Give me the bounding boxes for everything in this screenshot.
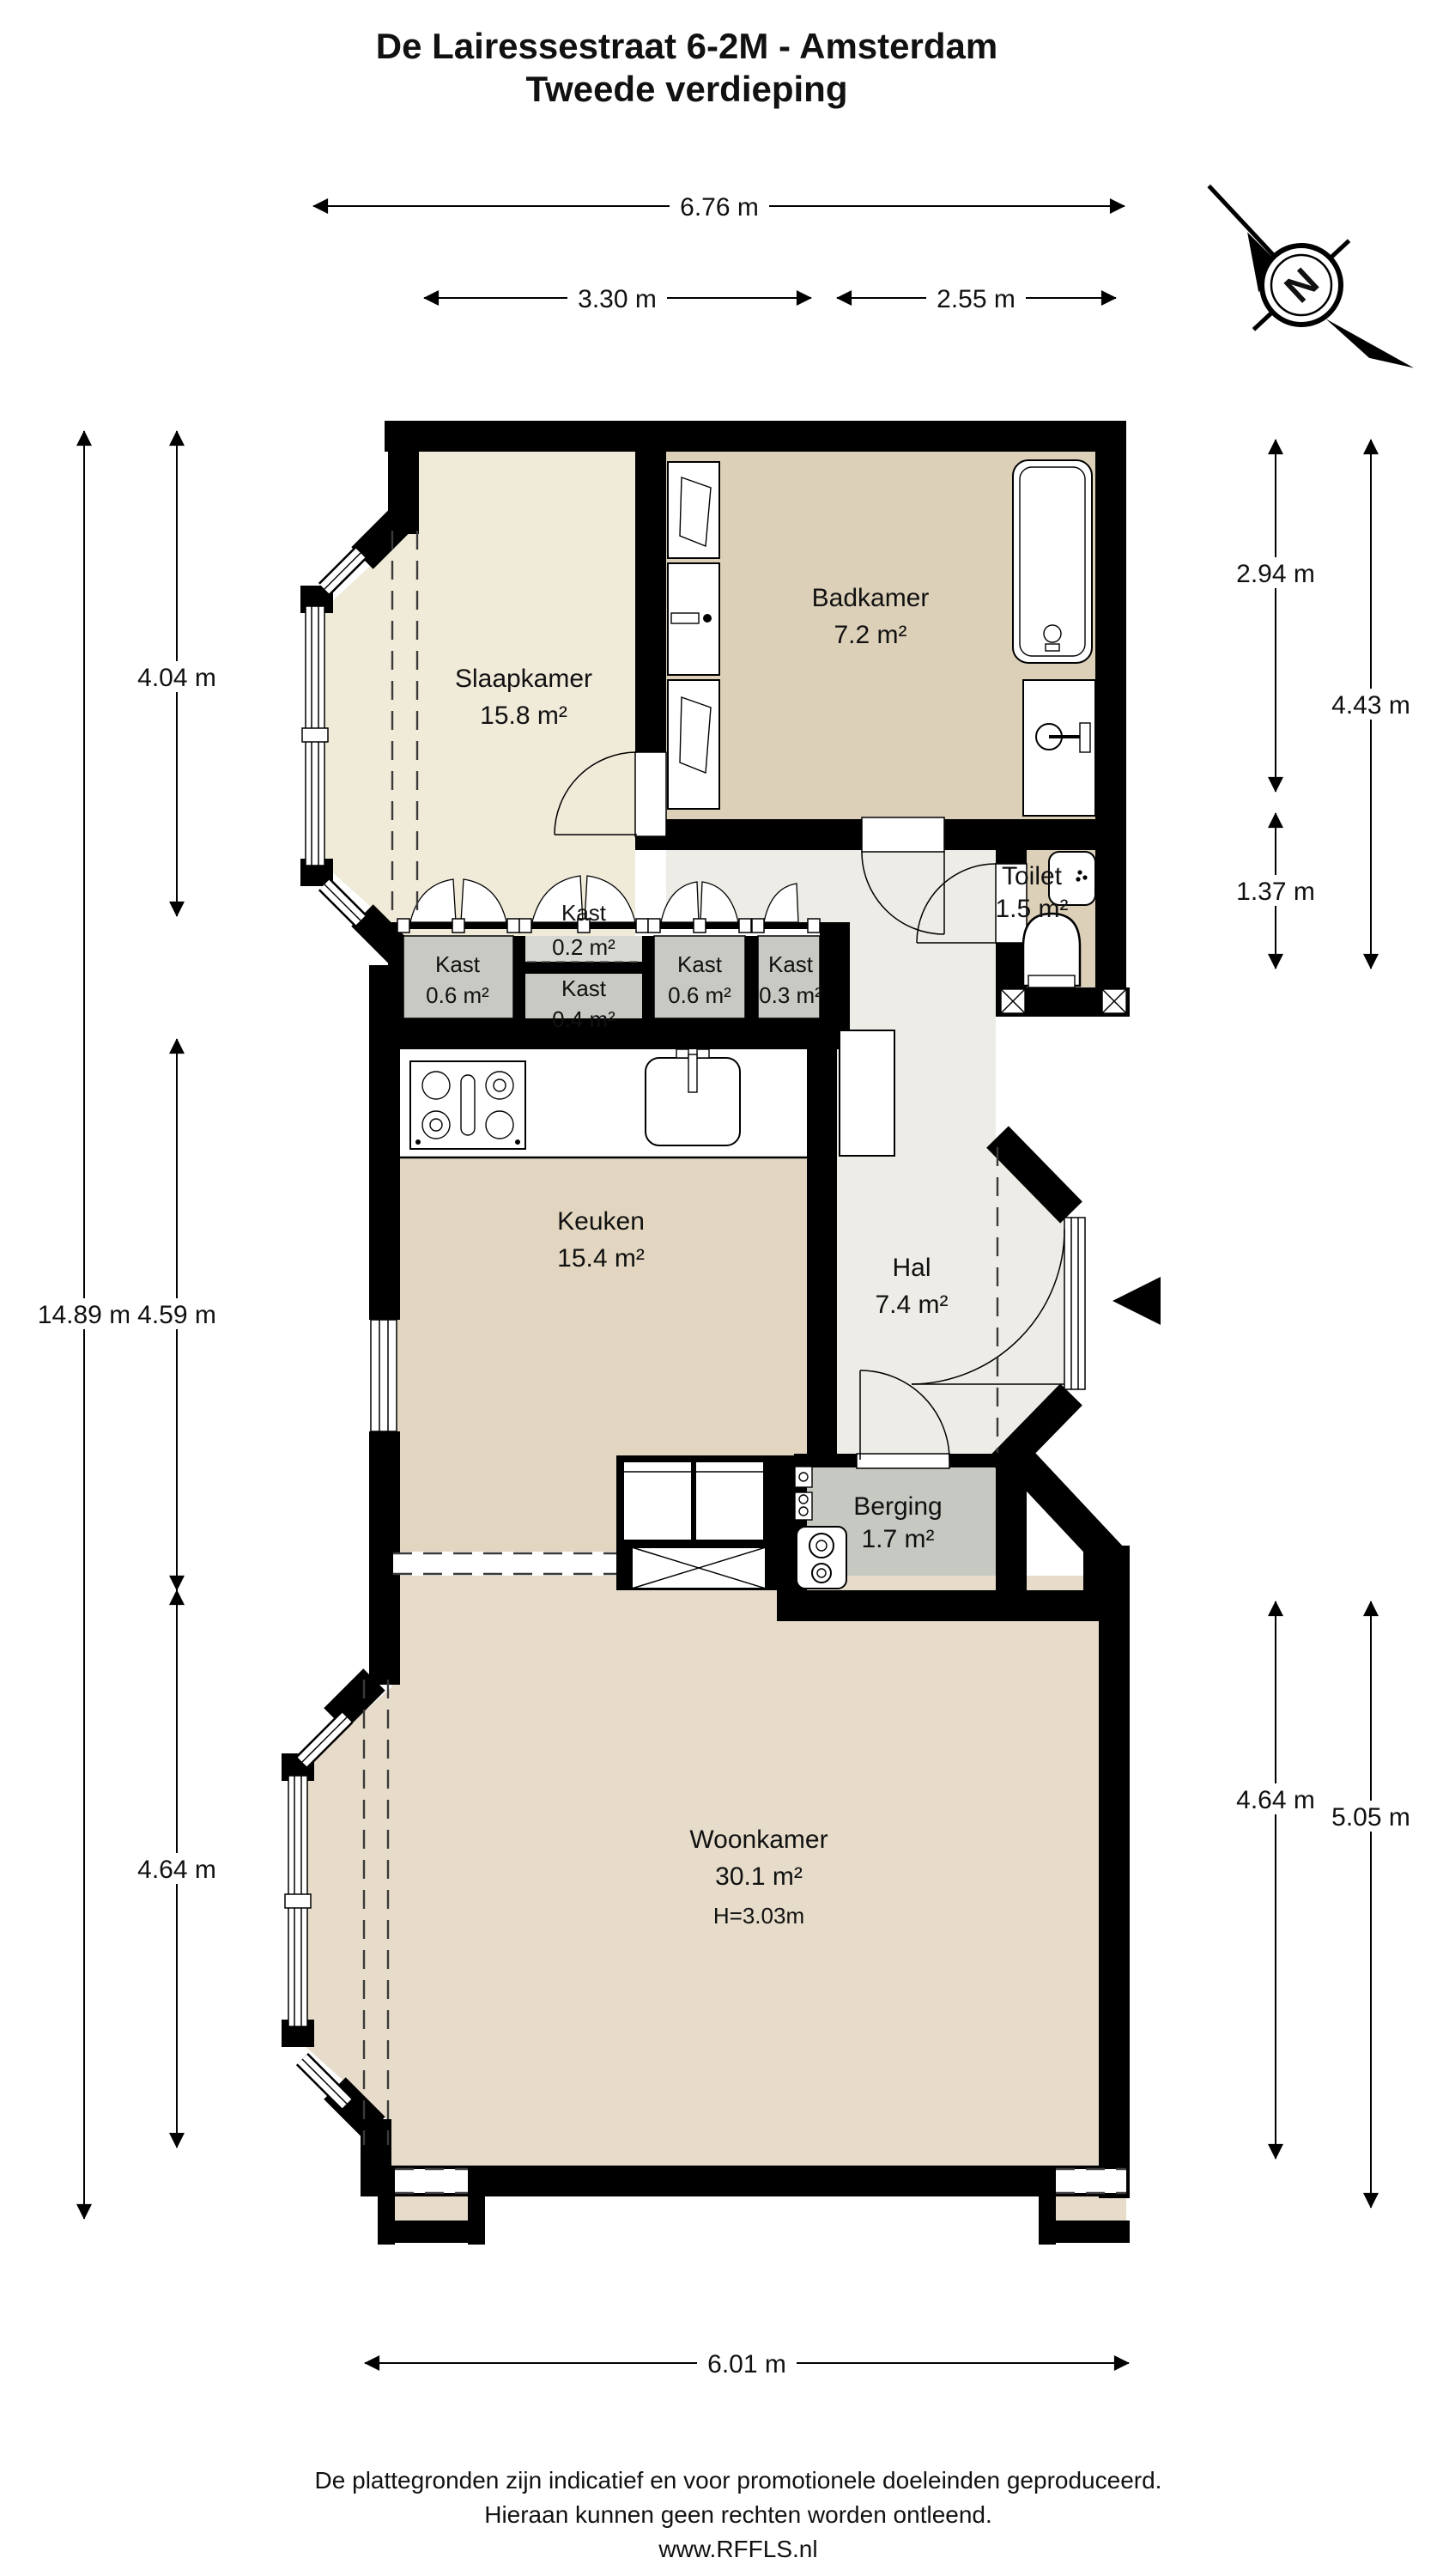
badkamer-area: 7.2 m² xyxy=(834,621,906,649)
socket-hole xyxy=(799,1495,808,1504)
footer-line1: De plattegronden zijn indicatief en voor… xyxy=(315,2467,1162,2494)
dim-right-mid-inner: 1.37 m xyxy=(1236,878,1315,906)
dim-top-left: 3.30 m xyxy=(578,285,657,313)
kast4-area: 0.6 m² xyxy=(668,982,731,1008)
dim-top-right: 2.55 m xyxy=(937,285,1016,313)
title-line1: De Lairessestraat 6-2M - Amsterdam xyxy=(376,26,997,66)
kast-post xyxy=(507,919,519,933)
kast-divider-1 xyxy=(513,936,525,1018)
passage-opening xyxy=(393,1554,616,1573)
wall-keuken-left-upper xyxy=(369,965,400,1320)
kast-divider-2 xyxy=(641,936,654,1018)
kast1-label: Kast xyxy=(435,951,481,977)
wall-right-outer xyxy=(1095,421,1126,1017)
wall-woon-bottom xyxy=(361,2166,1130,2196)
basin-dot xyxy=(1082,875,1087,879)
wall-sockets xyxy=(795,1467,812,1520)
wall-top xyxy=(385,421,1126,452)
dim-left-total: 14.89 m xyxy=(38,1301,130,1329)
mirror-icon xyxy=(680,697,711,773)
dim-left-top: 4.04 m xyxy=(137,664,216,692)
faucet-spout xyxy=(688,1054,697,1092)
woonkamer-height: H=3.03m xyxy=(713,1903,804,1929)
bathtub-drain xyxy=(1044,625,1061,642)
boiler-dial-inner xyxy=(816,1540,827,1551)
faucet-knob xyxy=(676,1049,688,1058)
balcony-sill-right xyxy=(1056,2196,1126,2221)
bathroom-sinks xyxy=(668,462,719,809)
kast-post xyxy=(694,919,706,933)
dim-bottom-total: 6.01 m xyxy=(707,2350,786,2379)
kast4-label: Kast xyxy=(677,951,723,977)
title-line2: Tweede verdieping xyxy=(526,69,848,109)
kast-post xyxy=(739,919,751,933)
kast2-area: 0.2 m² xyxy=(552,934,615,960)
page-title: De Lairessestraat 6-2M - Amsterdam Tweed… xyxy=(376,26,997,109)
balcony-opening-right xyxy=(1056,2169,1126,2193)
dim-top-total: 6.76 m xyxy=(680,193,759,222)
kast3-area: 0.4 m² xyxy=(552,1006,615,1032)
shower-valve xyxy=(1080,723,1090,752)
kast-post xyxy=(636,919,648,933)
recess-bottom-left xyxy=(378,2221,485,2243)
bathtub xyxy=(1013,460,1092,663)
woonkamer-area: 30.1 m² xyxy=(715,1862,803,1891)
wall-keuken-hal xyxy=(807,1018,837,1460)
dim-right-bottom-outer: 5.05 m xyxy=(1331,1803,1410,1832)
knob-dot xyxy=(415,1139,421,1145)
hal-area: 7.4 m² xyxy=(875,1291,948,1319)
cooktop xyxy=(410,1061,525,1149)
kast5-label: Kast xyxy=(768,951,814,977)
hal-label: Hal xyxy=(892,1254,931,1282)
wall-woon-right xyxy=(1099,1621,1130,2198)
wall-kast-right xyxy=(820,926,850,1018)
compass-tick xyxy=(1253,313,1270,330)
boiler xyxy=(797,1527,846,1589)
kast-post xyxy=(452,919,464,933)
sink-faucet xyxy=(671,613,699,623)
wall-woon-top xyxy=(777,1590,1130,1621)
entry-door-frame xyxy=(1064,1218,1085,1389)
cooktop-center xyxy=(461,1075,475,1135)
window-band xyxy=(371,1320,397,1431)
slaapkamer-label: Slaapkamer xyxy=(455,665,592,693)
kast-post xyxy=(648,919,660,933)
dim-left-mid: 4.59 m xyxy=(137,1301,216,1329)
wall-kast-bottom xyxy=(388,1018,850,1049)
berging-label: Berging xyxy=(853,1492,942,1521)
slaapkamer-floor xyxy=(388,452,635,938)
kast1-area: 0.6 m² xyxy=(426,982,489,1008)
dim-right-bottom-inner: 4.64 m xyxy=(1236,1786,1315,1814)
kitchen-sink xyxy=(646,1049,740,1145)
faucet-knob xyxy=(697,1049,709,1058)
toilet-seat-base xyxy=(1028,975,1075,987)
balcony-sill-left xyxy=(395,2196,468,2221)
floorplan-drawing: De Lairessestraat 6-2M - Amsterdam Tweed… xyxy=(0,0,1449,2576)
hall-cabinet xyxy=(840,1030,894,1156)
slaapkamer-area: 15.8 m² xyxy=(480,702,567,730)
dim-right-top-outer: 4.43 m xyxy=(1331,691,1410,720)
appliance-right xyxy=(695,1461,764,1540)
toilet-label: Toilet xyxy=(1002,862,1063,890)
kast-post xyxy=(397,919,409,933)
entrance-arrow-icon xyxy=(1113,1277,1161,1325)
berging-area: 1.7 m² xyxy=(861,1525,934,1553)
compass-tick xyxy=(1331,240,1349,257)
socket-hole xyxy=(799,1473,808,1481)
footer-line2: Hieraan kunnen geen rechten worden ontle… xyxy=(484,2501,992,2528)
keuken-label: Keuken xyxy=(557,1207,645,1236)
kast-divider-3 xyxy=(745,936,758,1018)
dim-left-bottom: 4.64 m xyxy=(137,1856,216,1884)
basin-dot xyxy=(1076,877,1080,881)
floorplan-page: De Lairessestraat 6-2M - Amsterdam Tweed… xyxy=(0,0,1449,2576)
kast-post xyxy=(519,919,531,933)
burner-inner xyxy=(494,1079,506,1091)
window-mullion xyxy=(285,1894,311,1908)
keuken-area: 15.4 m² xyxy=(557,1244,645,1273)
woonkamer-label: Woonkamer xyxy=(689,1826,828,1854)
knob-dot xyxy=(515,1139,520,1145)
badkamer-label: Badkamer xyxy=(812,584,930,612)
kast5-area: 0.3 m² xyxy=(759,982,822,1008)
socket-hole xyxy=(799,1507,808,1516)
door-frame-badkamer xyxy=(862,817,944,852)
window-keuken xyxy=(371,1320,397,1431)
window-mullion xyxy=(302,728,328,742)
door-frame-berging xyxy=(857,1454,949,1468)
shower xyxy=(1023,680,1095,816)
dim-right-top-inner: 2.94 m xyxy=(1236,560,1315,588)
kast-post xyxy=(752,919,764,933)
footer-disclaimer: De plattegronden zijn indicatief en voor… xyxy=(315,2467,1162,2562)
kast-post xyxy=(808,919,820,933)
burner-inner xyxy=(430,1119,442,1131)
kast2-label: Kast xyxy=(561,900,607,926)
burner xyxy=(486,1111,513,1139)
mirror-icon xyxy=(680,477,711,546)
sink-drain xyxy=(703,614,712,623)
appliance-left xyxy=(623,1461,692,1540)
door-frame-slaapkamer xyxy=(635,752,666,836)
balcony-opening-left xyxy=(395,2169,468,2193)
kast3-label: Kast xyxy=(561,975,607,1001)
recess-bottom-right xyxy=(1039,2221,1130,2243)
burner xyxy=(422,1072,450,1099)
toilet-area: 1.5 m² xyxy=(995,895,1068,923)
basin-dot xyxy=(1077,870,1082,874)
bathtub-faucet xyxy=(1046,644,1059,651)
footer-url: www.RFFLS.nl xyxy=(658,2536,817,2562)
boiler-dial-inner xyxy=(817,1569,826,1577)
compass-arrow xyxy=(1325,298,1414,389)
compass-icon: N xyxy=(1161,142,1443,430)
appliances xyxy=(623,1461,766,1589)
kast-mid-divider xyxy=(525,962,642,974)
